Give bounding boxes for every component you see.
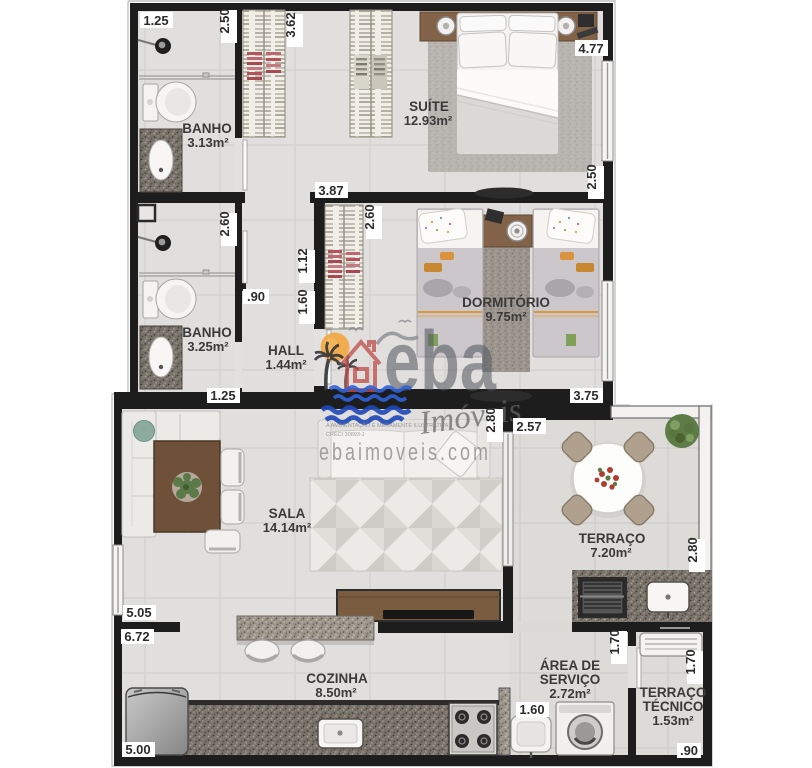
svg-text:1.70: 1.70 xyxy=(683,649,698,674)
svg-text:3.25m²: 3.25m² xyxy=(187,339,229,354)
svg-text:2.50: 2.50 xyxy=(584,164,599,189)
svg-text:1.60: 1.60 xyxy=(519,702,544,717)
svg-text:6.72: 6.72 xyxy=(124,629,149,644)
svg-text:2.57: 2.57 xyxy=(516,419,541,434)
svg-text:4.77: 4.77 xyxy=(578,41,603,56)
svg-text:2.60: 2.60 xyxy=(217,211,232,236)
svg-text:TÉCNICO: TÉCNICO xyxy=(643,699,704,714)
svg-text:BANHO: BANHO xyxy=(182,325,232,340)
svg-text:1.44m²: 1.44m² xyxy=(265,357,307,372)
svg-text:.90: .90 xyxy=(247,289,265,304)
svg-text:2.60: 2.60 xyxy=(362,204,377,229)
svg-text:BANHO: BANHO xyxy=(182,121,232,136)
svg-text:3.62: 3.62 xyxy=(283,12,298,37)
svg-text:1.25: 1.25 xyxy=(210,388,235,403)
svg-text:ebaimoveis.com: ebaimoveis.com xyxy=(319,439,491,466)
svg-text:2.72m²: 2.72m² xyxy=(549,686,591,701)
svg-text:12.93m²: 12.93m² xyxy=(404,113,453,128)
svg-text:1.12: 1.12 xyxy=(295,248,310,273)
svg-text:3.13m²: 3.13m² xyxy=(187,135,229,150)
svg-text:SALA: SALA xyxy=(269,506,306,521)
svg-text:1.70: 1.70 xyxy=(607,629,622,654)
svg-text:COZINHA: COZINHA xyxy=(306,671,368,686)
svg-text:A AMBIENTAÇÃO É MERAMENTE ILUS: A AMBIENTAÇÃO É MERAMENTE ILUSTRATIVA xyxy=(326,422,449,429)
svg-text:3.75: 3.75 xyxy=(573,388,598,403)
svg-text:SUÍTE: SUÍTE xyxy=(409,99,449,114)
svg-text:ÁREA DE: ÁREA DE xyxy=(540,658,600,673)
svg-text:9.75m²: 9.75m² xyxy=(485,309,527,324)
svg-text:CRECI 30893-J: CRECI 30893-J xyxy=(326,432,365,438)
svg-text:5.05: 5.05 xyxy=(126,605,151,620)
svg-text:14.14m²: 14.14m² xyxy=(263,520,312,535)
svg-text:2.50: 2.50 xyxy=(217,8,232,33)
svg-text:.90: .90 xyxy=(680,743,698,758)
svg-text:1.25: 1.25 xyxy=(143,13,168,28)
svg-text:8.50m²: 8.50m² xyxy=(315,685,357,700)
svg-text:SERVIÇO: SERVIÇO xyxy=(540,672,601,687)
svg-text:5.00: 5.00 xyxy=(125,742,150,757)
svg-text:DORMITÓRIO: DORMITÓRIO xyxy=(462,295,550,310)
svg-text:eba: eba xyxy=(384,314,497,408)
svg-text:3.87: 3.87 xyxy=(318,183,343,198)
svg-text:1.53m²: 1.53m² xyxy=(652,713,694,728)
svg-text:1.60: 1.60 xyxy=(295,289,310,314)
svg-text:HALL: HALL xyxy=(268,343,304,358)
svg-text:TERRAÇO: TERRAÇO xyxy=(579,531,646,546)
svg-text:2.80: 2.80 xyxy=(685,537,700,562)
svg-text:TERRAÇO: TERRAÇO xyxy=(640,685,707,700)
svg-text:2.80: 2.80 xyxy=(483,407,498,432)
svg-text:7.20m²: 7.20m² xyxy=(590,545,632,560)
